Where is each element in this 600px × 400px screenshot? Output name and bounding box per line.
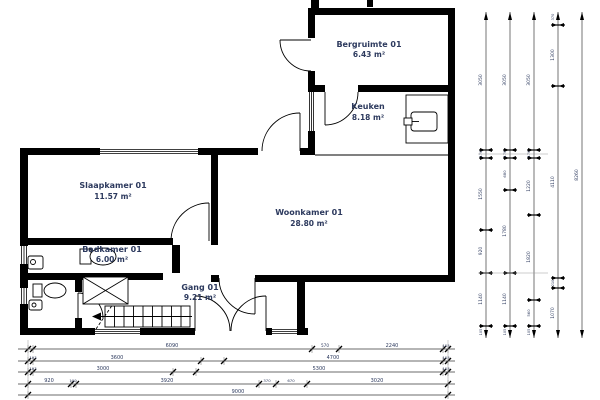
dim-label: 3600	[111, 355, 124, 361]
kitchen-counter-sink	[404, 95, 448, 143]
dim-tick-arrow	[535, 156, 540, 160]
dim-label: 1820	[526, 251, 532, 263]
dim-label: 103	[442, 366, 450, 371]
dim-tick-arrow	[552, 84, 557, 88]
room-label-gang: Gang 01	[181, 283, 219, 292]
shaft-box	[83, 277, 128, 304]
room-label-woonkamer: Woonkamer 01	[275, 208, 343, 217]
dim-label: 103	[29, 366, 37, 371]
dim-tick-arrow	[487, 148, 492, 152]
dim-label: 1140	[478, 293, 484, 305]
dim-label: 1220	[526, 180, 532, 192]
dim-label: 3020	[371, 378, 384, 384]
dim-tick-arrow	[487, 156, 492, 160]
dim-tick-arrow	[487, 324, 492, 328]
dim-label: 920	[44, 378, 54, 384]
room-label-slaapkamer: Slaapkamer 01	[79, 181, 147, 190]
dim-tick-arrow	[559, 84, 564, 88]
staircase	[92, 304, 192, 329]
room-labels: Bergruimte 01 6.43 m² Keuken 8.18 m² Sla…	[79, 40, 402, 302]
dim-tick-arrow	[559, 286, 564, 290]
dim-tick-arrow	[535, 213, 540, 217]
dim-label: 1140	[502, 293, 508, 305]
dim-label: 105	[479, 329, 483, 336]
dim-label: 9000	[232, 389, 245, 395]
dim-label: 1070	[550, 307, 556, 319]
stair-direction-arrow	[92, 313, 101, 321]
dim-arrow-down	[508, 330, 512, 338]
dim-arrow-down	[484, 330, 488, 338]
dim-label: 920	[478, 247, 484, 256]
floor-plan-page: Bergruimte 01 6.43 m² Keuken 8.18 m² Sla…	[0, 0, 600, 400]
dim-tick-arrow	[487, 228, 492, 232]
dim-tick-arrow	[511, 156, 516, 160]
dim-tick-arrow	[535, 324, 540, 328]
room-label-keuken: Keuken	[351, 102, 385, 111]
dim-label: 680	[502, 170, 507, 178]
dim-arrow-down	[580, 330, 584, 338]
dim-label: 103	[29, 355, 37, 360]
dim-label: 103	[442, 355, 450, 360]
dim-label: 1300	[550, 49, 556, 61]
dim-tick-arrow	[511, 148, 516, 152]
dim-label: 103	[442, 343, 450, 348]
dim-tick-arrow	[559, 23, 564, 27]
dim-label: 5300	[313, 366, 326, 372]
dim-label: 6090	[166, 343, 179, 349]
floor-plan-drawing: Bergruimte 01 6.43 m² Keuken 8.18 m² Sla…	[0, 0, 600, 400]
dim-label: 4110	[550, 176, 556, 188]
dim-label: 560	[526, 309, 531, 317]
dim-tick-arrow	[552, 23, 557, 27]
dim-label: 3050	[478, 74, 484, 86]
dim-tick-arrow	[528, 213, 533, 217]
dim-tick-arrow	[528, 298, 533, 302]
dim-label: 1550	[478, 188, 484, 200]
dimension-rows-bottom: 6090570224010310336004700103103300053001…	[18, 343, 455, 399]
dim-label: 1780	[502, 225, 508, 237]
dim-tick-arrow	[504, 324, 509, 328]
dim-label: 3920	[161, 378, 174, 384]
dimension-cols-right: 3050170155092011401053050170680178011401…	[478, 12, 584, 338]
dim-tick-arrow	[535, 298, 540, 302]
dim-tick-arrow	[504, 188, 509, 192]
dim-arrow-up	[556, 12, 560, 20]
wc-toilet	[33, 283, 66, 298]
top-stub	[311, 0, 319, 9]
room-area-keuken: 8.18 m²	[352, 113, 384, 122]
dim-arrow-up	[508, 12, 512, 20]
dim-tick-arrow	[559, 276, 564, 280]
dim-arrow-up	[484, 12, 488, 20]
room-area-badkamer: 6.00 m²	[96, 255, 128, 264]
room-label-badkamer: Badkamer 01	[82, 245, 142, 254]
wc-sink	[29, 300, 42, 310]
dim-label: 105	[527, 329, 531, 336]
room-area-slaapkamer: 11.57 m²	[94, 192, 131, 201]
dim-label: 3050	[502, 74, 508, 86]
dim-arrow-down	[532, 330, 536, 338]
dim-tick-arrow	[528, 324, 533, 328]
room-area-woonkamer: 28.80 m²	[290, 219, 327, 228]
dim-tick-arrow	[480, 324, 485, 328]
dim-label: 100	[69, 378, 77, 383]
dim-label: 2240	[386, 343, 399, 349]
dim-tick-arrow	[552, 276, 557, 280]
dim-arrow-down	[556, 330, 560, 338]
dim-tick-arrow	[511, 324, 516, 328]
dim-label: 370	[263, 378, 271, 383]
dim-label: 105	[503, 329, 507, 336]
bathroom-sink	[28, 256, 43, 269]
top-stub	[367, 0, 373, 7]
room-area-gang: 9.21 m²	[184, 293, 216, 302]
fixtures	[28, 95, 448, 329]
dim-arrow-up	[532, 12, 536, 20]
dim-label: 210	[551, 280, 555, 287]
dim-label: 670	[287, 378, 295, 383]
dim-label: 3000	[97, 366, 110, 372]
dim-arrow-up	[580, 12, 584, 20]
dim-tick-arrow	[511, 188, 516, 192]
room-label-bergruimte: Bergruimte 01	[336, 40, 402, 49]
dim-label: 4700	[327, 355, 340, 361]
dim-label: 3050	[526, 74, 532, 86]
dim-tick-arrow	[480, 228, 485, 232]
dim-label: 8260	[574, 169, 580, 181]
dim-tick-arrow	[535, 148, 540, 152]
dim-label: 570	[321, 343, 329, 348]
dim-label: 370	[551, 14, 555, 21]
room-area-bergruimte: 6.43 m²	[353, 50, 385, 59]
